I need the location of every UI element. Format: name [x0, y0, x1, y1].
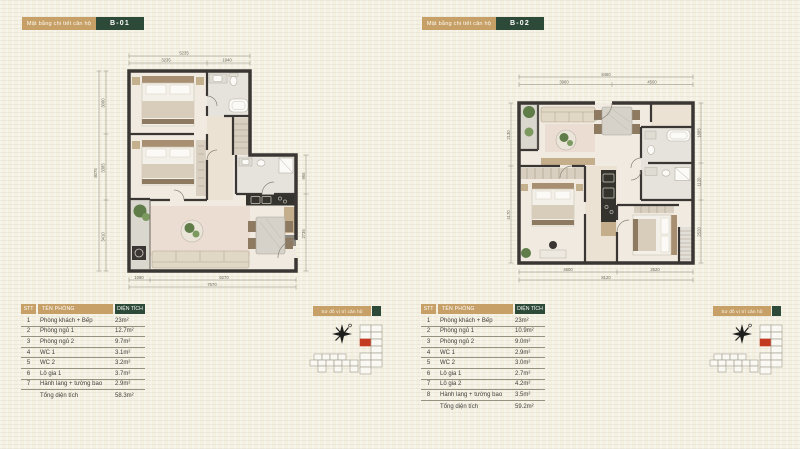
- svg-text:3385: 3385: [101, 163, 106, 173]
- table-total-row: Tổng diện tích59.2m²: [421, 401, 545, 413]
- table-row: 7Lô gia 24.2m²: [421, 380, 545, 391]
- compass-icon: [332, 324, 352, 344]
- minimap-title: Sơ đồ vị trí căn hộ: [313, 306, 371, 316]
- svg-text:2130: 2130: [506, 130, 511, 140]
- coffee-table: [556, 130, 576, 150]
- svg-text:8460: 8460: [601, 72, 611, 77]
- section-header-b01: Mặt bằng chi tiết căn hộ B-01: [22, 17, 144, 30]
- section-b01: Mặt bằng chi tiết căn hộ B-01: [0, 0, 400, 449]
- kitchen-counter: [601, 170, 616, 236]
- minimap-title: Sơ đồ vị trí căn hộ: [713, 306, 771, 316]
- svg-text:8120: 8120: [601, 275, 611, 280]
- svg-text:4600: 4600: [563, 267, 573, 272]
- highlighted-unit: [360, 339, 371, 346]
- table-row: 1Phòng khách + Bếp23m²: [421, 316, 545, 327]
- col-stt: STT: [21, 304, 36, 314]
- hallway-floor: [207, 116, 233, 200]
- svg-text:7570: 7570: [207, 282, 217, 287]
- table-row: 4WC 12.9m²: [421, 348, 545, 359]
- table-row: 4WC 13.1m²: [21, 348, 145, 359]
- table-row: 2Phòng ngủ 112.7m²: [21, 327, 145, 338]
- svg-text:2520: 2520: [697, 227, 702, 237]
- highlighted-unit: [760, 339, 771, 346]
- minimap-header-b01: Sơ đồ vị trí căn hộ: [313, 306, 381, 316]
- table-row: 2Phòng ngủ 110.9m²: [421, 327, 545, 338]
- wardrobe: [234, 118, 249, 155]
- svg-text:1120: 1120: [697, 177, 702, 187]
- table-row: 7Hành lang + tường bao2.9m²: [21, 380, 145, 391]
- floor-plan-b01: 5235 3235 1940 8075 3080 3385 3410 965 2…: [88, 46, 320, 298]
- tower-block: [760, 325, 782, 374]
- entry-floor: [651, 104, 693, 127]
- col-name: TÊN PHÒNG: [438, 304, 513, 314]
- table-row: 5WC 23.2m²: [21, 358, 145, 369]
- podium-block: [710, 354, 758, 372]
- room-table-b02: STT TÊN PHÒNG DIỆN TÍCH 1Phòng khách + B…: [421, 304, 545, 412]
- logia2-floor: [679, 227, 693, 263]
- section-b02: Mặt bằng chi tiết căn hộ B-02: [400, 0, 800, 449]
- table-header: STT TÊN PHÒNG DIỆN TÍCH: [421, 304, 545, 314]
- svg-text:4170: 4170: [506, 210, 511, 220]
- svg-text:1885: 1885: [697, 128, 702, 138]
- table-row: 8Hành lang + tường bao3.5m²: [421, 390, 545, 401]
- unit-code-badge: B-02: [496, 17, 544, 30]
- unit-locator-map-b01: [308, 321, 392, 393]
- tower-block: [360, 325, 382, 374]
- svg-text:2735: 2735: [301, 229, 306, 239]
- svg-text:5235: 5235: [179, 51, 189, 56]
- minimap-unit-marker: [372, 306, 381, 316]
- svg-text:4500: 4500: [647, 79, 657, 84]
- washing-machine: [132, 246, 146, 260]
- col-area: DIỆN TÍCH: [515, 304, 545, 314]
- svg-text:965: 965: [301, 172, 306, 180]
- svg-text:3235: 3235: [161, 58, 171, 63]
- svg-text:3080: 3080: [101, 98, 106, 108]
- unit-locator-map-b02: [708, 321, 792, 393]
- coffee-table: [181, 220, 203, 242]
- podium-block: [310, 354, 358, 372]
- col-stt: STT: [421, 304, 436, 314]
- table-total-row: Tổng diện tích58.3m²: [21, 390, 145, 402]
- svg-text:3410: 3410: [101, 232, 106, 242]
- floor-plan-b02: 8460 3960 4500 2130 4170 1885 1120 2520 …: [488, 60, 720, 295]
- header-title: Mặt bằng chi tiết căn hộ: [422, 17, 496, 30]
- table-row: 6Lô gia 12.7m²: [421, 369, 545, 380]
- table-row: 3Phòng ngủ 29.7m²: [21, 337, 145, 348]
- table-row: 5WC 23.0m²: [421, 358, 545, 369]
- svg-text:3960: 3960: [559, 79, 569, 84]
- minimap-unit-marker: [772, 306, 781, 316]
- svg-text:2520: 2520: [650, 267, 660, 272]
- svg-text:1080: 1080: [134, 275, 144, 280]
- col-area: DIỆN TÍCH: [115, 304, 145, 314]
- sofa-icon: [541, 107, 595, 122]
- svg-text:8075: 8075: [93, 168, 98, 178]
- col-name: TÊN PHÒNG: [38, 304, 113, 314]
- minimap-header-b02: Sơ đồ vị trí căn hộ: [713, 306, 781, 316]
- header-title: Mặt bằng chi tiết căn hộ: [22, 17, 96, 30]
- unit-code-badge: B-01: [96, 17, 144, 30]
- table-row: 3Phòng ngủ 29.0m²: [421, 337, 545, 348]
- tv-console: [541, 158, 595, 165]
- table-row: 1Phòng khách + Bếp23m²: [21, 316, 145, 327]
- bed1-icon: [132, 76, 204, 126]
- sofa-icon: [152, 251, 249, 268]
- table-header: STT TÊN PHÒNG DIỆN TÍCH: [21, 304, 145, 314]
- brochure-page: { "colors": { "accent_tan": "#C7A067", "…: [0, 0, 800, 449]
- svg-text:6270: 6270: [219, 275, 229, 280]
- compass-icon: [732, 324, 752, 344]
- section-header-b02: Mặt bằng chi tiết căn hộ B-02: [422, 17, 544, 30]
- svg-text:1940: 1940: [222, 58, 232, 63]
- room-table-b01: STT TÊN PHÒNG DIỆN TÍCH 1Phòng khách + B…: [21, 304, 145, 402]
- table-row: 6Lô gia 13.7m²: [21, 369, 145, 380]
